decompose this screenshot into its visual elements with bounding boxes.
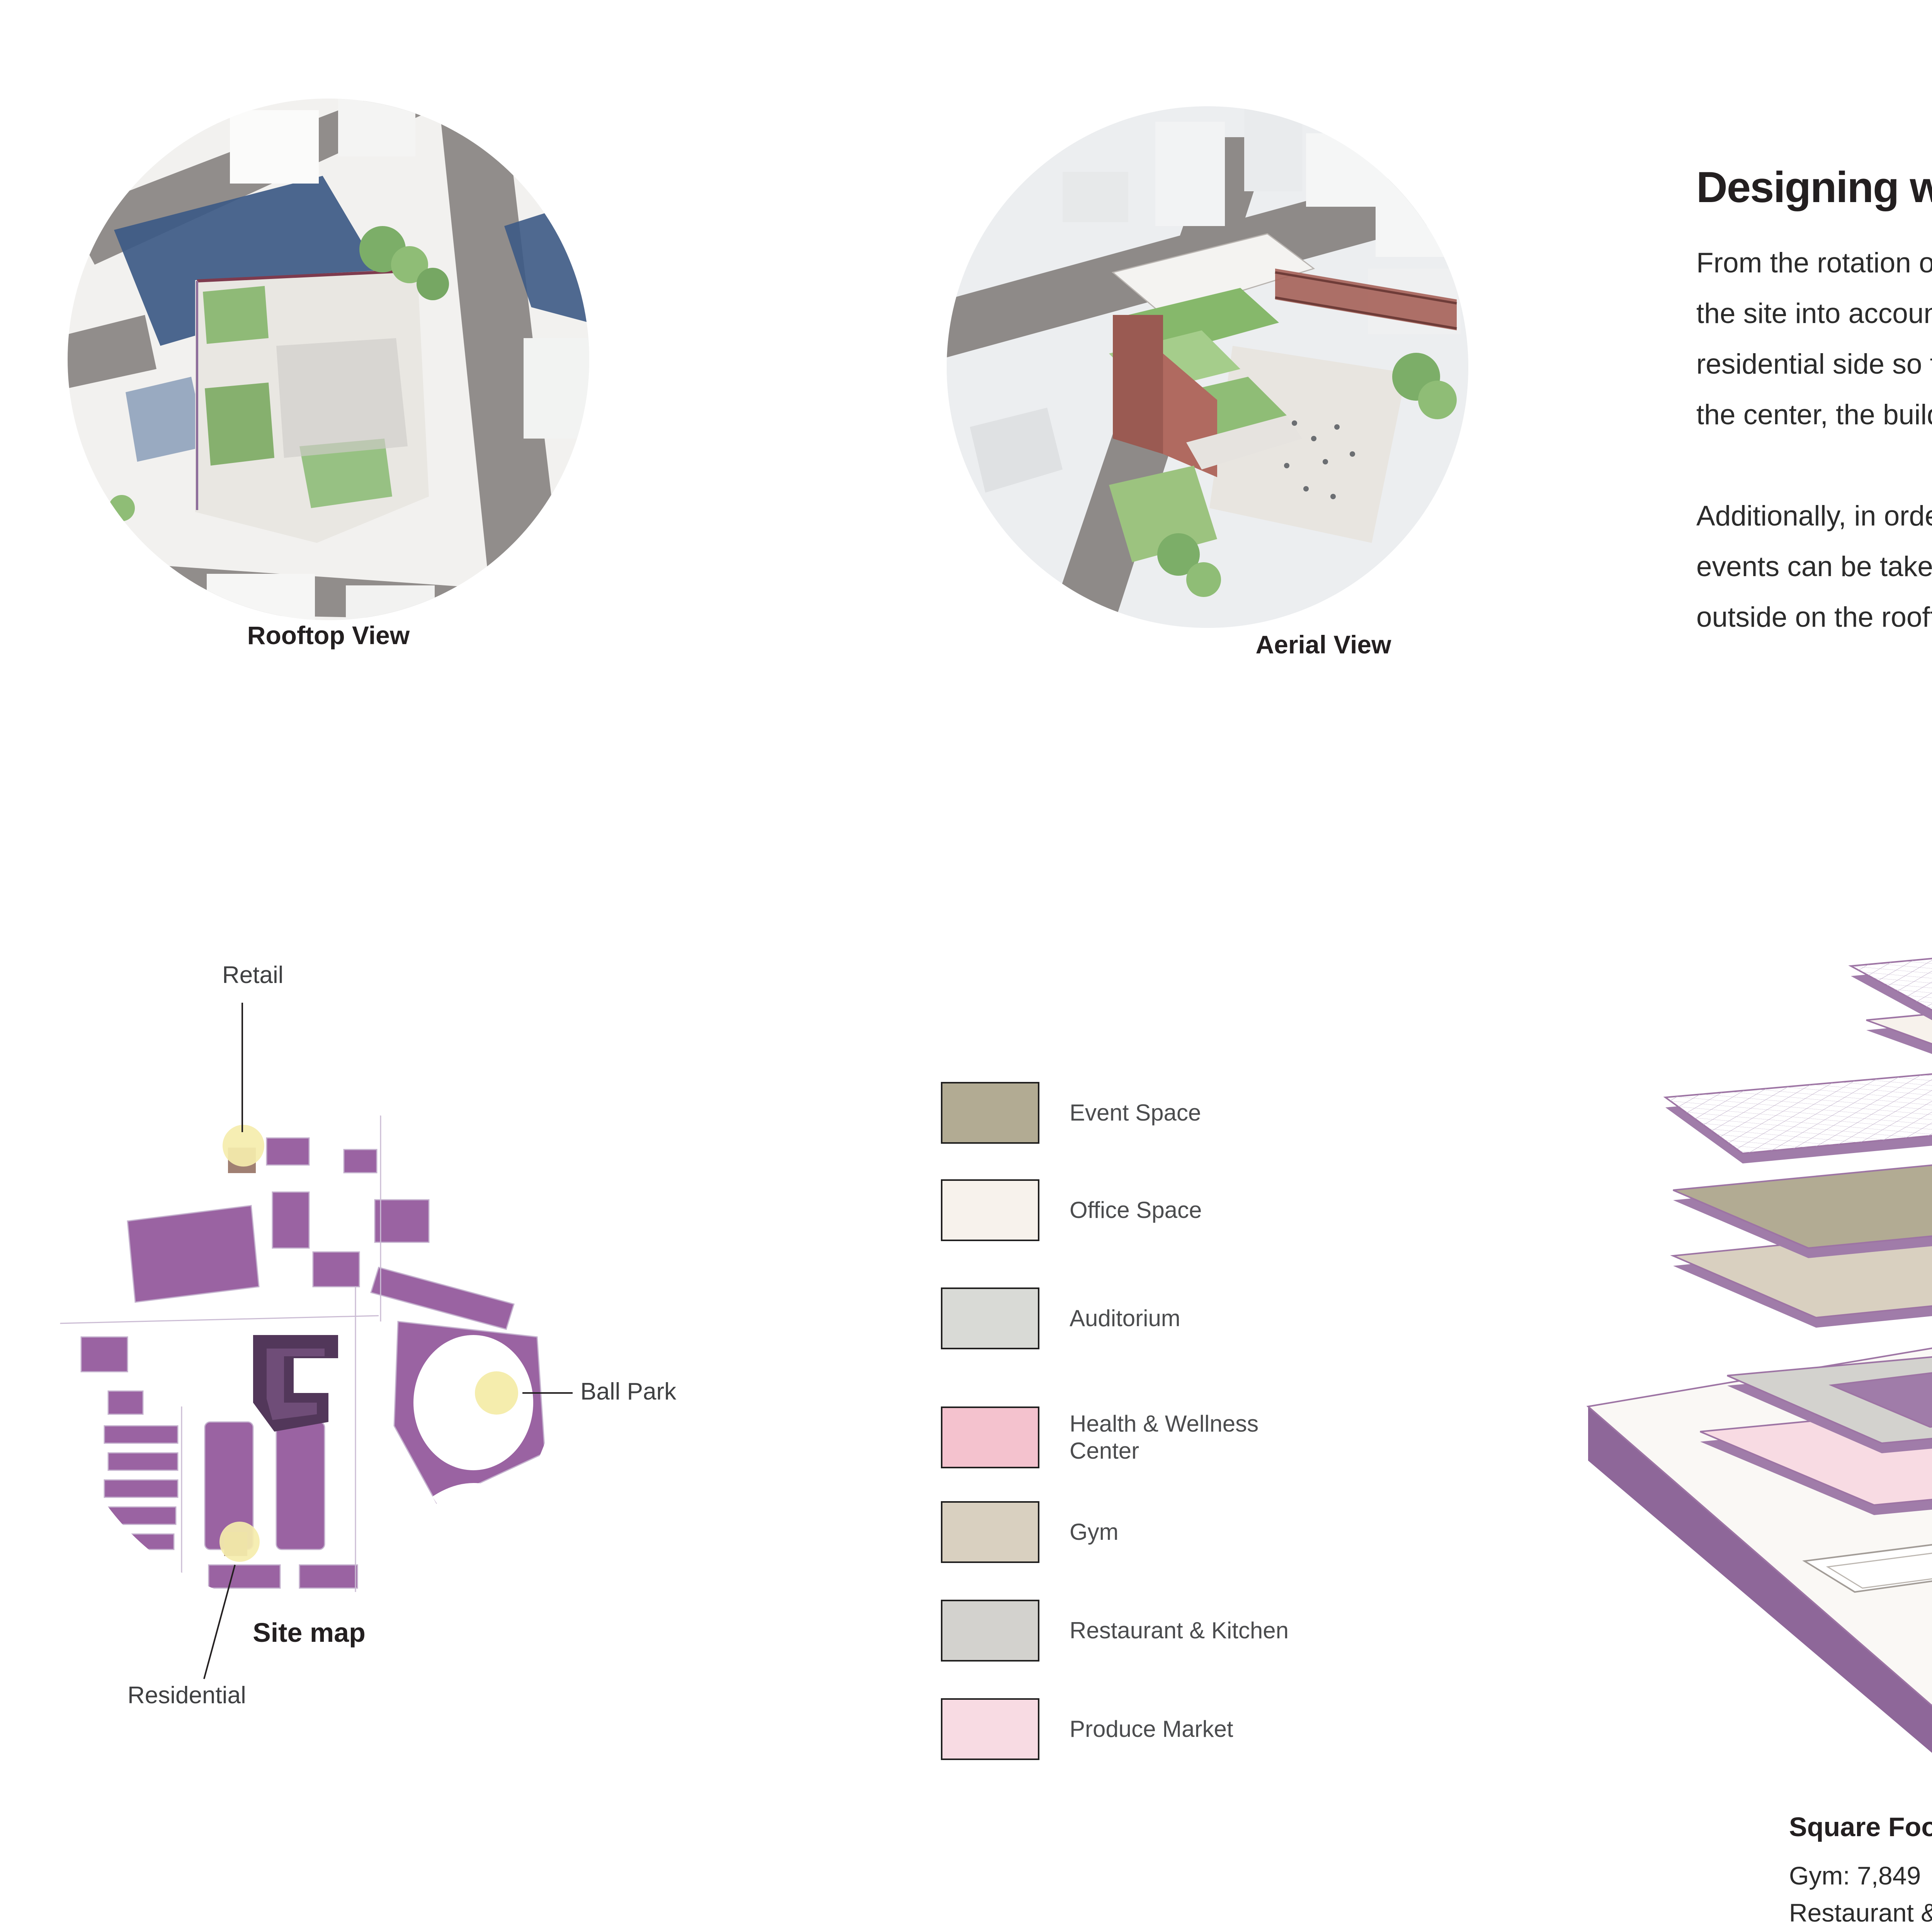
exploded-axon-diagram [1565, 804, 1932, 1816]
produce-market-swatch [941, 1698, 1039, 1760]
legend-label: Event Space [1070, 1099, 1317, 1126]
ball-park-marker [475, 1371, 518, 1415]
intro-paragraph-2: Additionally, in order for various activ… [1696, 491, 1932, 643]
legend-item-auditorium: Auditorium [941, 1287, 1317, 1349]
legend-label: Gym [1070, 1519, 1317, 1546]
aerial-view-illustration [947, 106, 1468, 628]
gym-swatch [941, 1501, 1039, 1563]
retail-label: Retail [222, 961, 284, 989]
intro-paragraph-1: From the rotation of the building to the… [1696, 238, 1932, 440]
legend-item-event-space: Event Space [941, 1082, 1317, 1144]
legend-label: Auditorium [1070, 1305, 1317, 1332]
auditorium-swatch [941, 1287, 1039, 1349]
legend-item-office-space: Office Space [941, 1179, 1317, 1241]
square-footage-left: Square Footage Gym: 7,849 Restaurant & K… [1789, 1811, 1932, 1932]
legend-item-gym: Gym [941, 1501, 1317, 1563]
intro-text-block: Designing with the site in Mind From the… [1696, 162, 1932, 643]
restaurant-kitchen-swatch [941, 1600, 1039, 1662]
legend-label: Produce Market [1070, 1716, 1317, 1743]
site-map-illustration [58, 1105, 560, 1607]
legend-label: Office Space [1070, 1197, 1317, 1224]
rooftop-view-caption: Rooftop View [68, 621, 589, 650]
legend-label: Health & Wellness Center [1070, 1410, 1317, 1464]
page-title: Designing with the site in Mind [1696, 162, 1932, 212]
residential-label: Residential [128, 1682, 246, 1709]
legend-item-restaurant-kitchen: Restaurant & Kitchen [941, 1600, 1317, 1662]
event-space-swatch [941, 1082, 1039, 1144]
sf-restaurant-kitchen: Restaurant & Kitchen: 5,457 [1789, 1894, 1932, 1931]
health-wellness-swatch [941, 1406, 1039, 1468]
exploded-axon-illustration [1565, 804, 1932, 1816]
legend-label: Restaurant & Kitchen [1070, 1617, 1317, 1644]
rooftop-view-illustration [68, 99, 589, 620]
legend-item-produce-market: Produce Market [941, 1698, 1317, 1760]
office-space-swatch [941, 1179, 1039, 1241]
rooftop-view-image [68, 99, 589, 620]
aerial-view-image [947, 106, 1468, 628]
square-footage-left-heading: Square Footage [1789, 1811, 1932, 1842]
site-map-caption: Site map [58, 1617, 560, 1648]
aerial-view-caption: Aerial View [1063, 630, 1584, 659]
residential-marker [219, 1522, 260, 1562]
legend-item-health-wellness: Health & Wellness Center [941, 1406, 1317, 1468]
site-map-image [58, 1105, 560, 1607]
sf-gym: Gym: 7,849 [1789, 1857, 1932, 1894]
ball-park-label: Ball Park [580, 1378, 676, 1405]
retail-marker [223, 1125, 264, 1167]
